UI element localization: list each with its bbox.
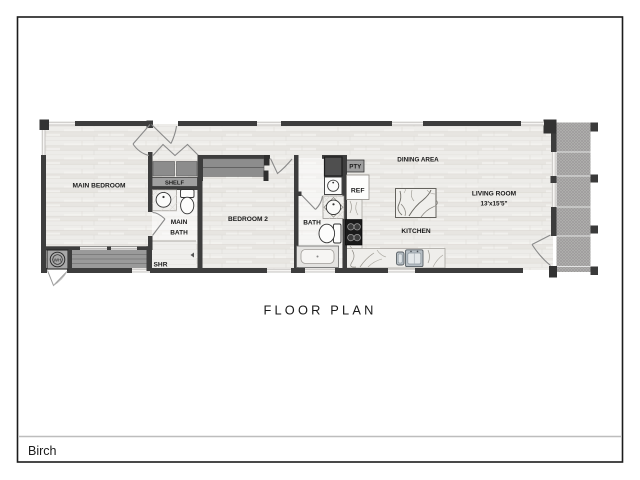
svg-text:BATH: BATH (303, 220, 321, 227)
svg-text:KITCHEN: KITCHEN (401, 228, 431, 235)
svg-text:REF: REF (351, 188, 365, 195)
svg-text:MAIN BEDROOM: MAIN BEDROOM (72, 183, 126, 190)
svg-text:DINING AREA: DINING AREA (397, 157, 439, 164)
svg-text:BATH: BATH (170, 230, 188, 237)
svg-text:SHELF: SHELF (165, 181, 184, 187)
svg-text:13'x15'5": 13'x15'5" (481, 201, 508, 208)
svg-text:SHR: SHR (154, 262, 168, 269)
svg-text:LIVING ROOM: LIVING ROOM (472, 191, 517, 198)
svg-text:FLOOR PLAN: FLOOR PLAN (263, 303, 376, 318)
svg-text:Birch: Birch (28, 444, 57, 458)
svg-text:PTY: PTY (349, 164, 362, 171)
svg-text:MAIN: MAIN (171, 219, 188, 226)
svg-text:WH: WH (54, 257, 62, 262)
svg-text:BEDROOM 2: BEDROOM 2 (228, 216, 268, 223)
